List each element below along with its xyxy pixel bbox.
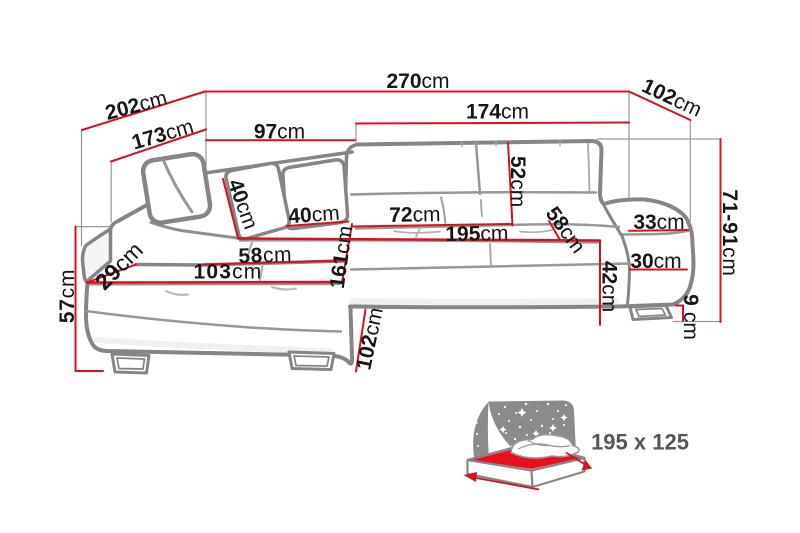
svg-text:30cm: 30cm: [630, 250, 681, 273]
svg-text:57cm: 57cm: [56, 269, 79, 324]
svg-text:71-91cm: 71-91cm: [718, 189, 741, 276]
svg-text:97cm: 97cm: [254, 121, 305, 144]
svg-text:195 x 125: 195 x 125: [591, 430, 689, 455]
svg-text:174cm: 174cm: [466, 101, 529, 124]
svg-text:270cm: 270cm: [386, 70, 449, 93]
svg-text:9cm: 9cm: [679, 294, 702, 340]
svg-text:40cm: 40cm: [288, 202, 341, 229]
svg-text:103cm: 103cm: [193, 261, 262, 284]
svg-text:42cm: 42cm: [598, 261, 621, 312]
svg-text:52cm: 52cm: [506, 156, 529, 207]
svg-text:195cm: 195cm: [445, 222, 508, 246]
svg-text:33cm: 33cm: [633, 211, 684, 234]
svg-text:72cm: 72cm: [389, 203, 441, 227]
